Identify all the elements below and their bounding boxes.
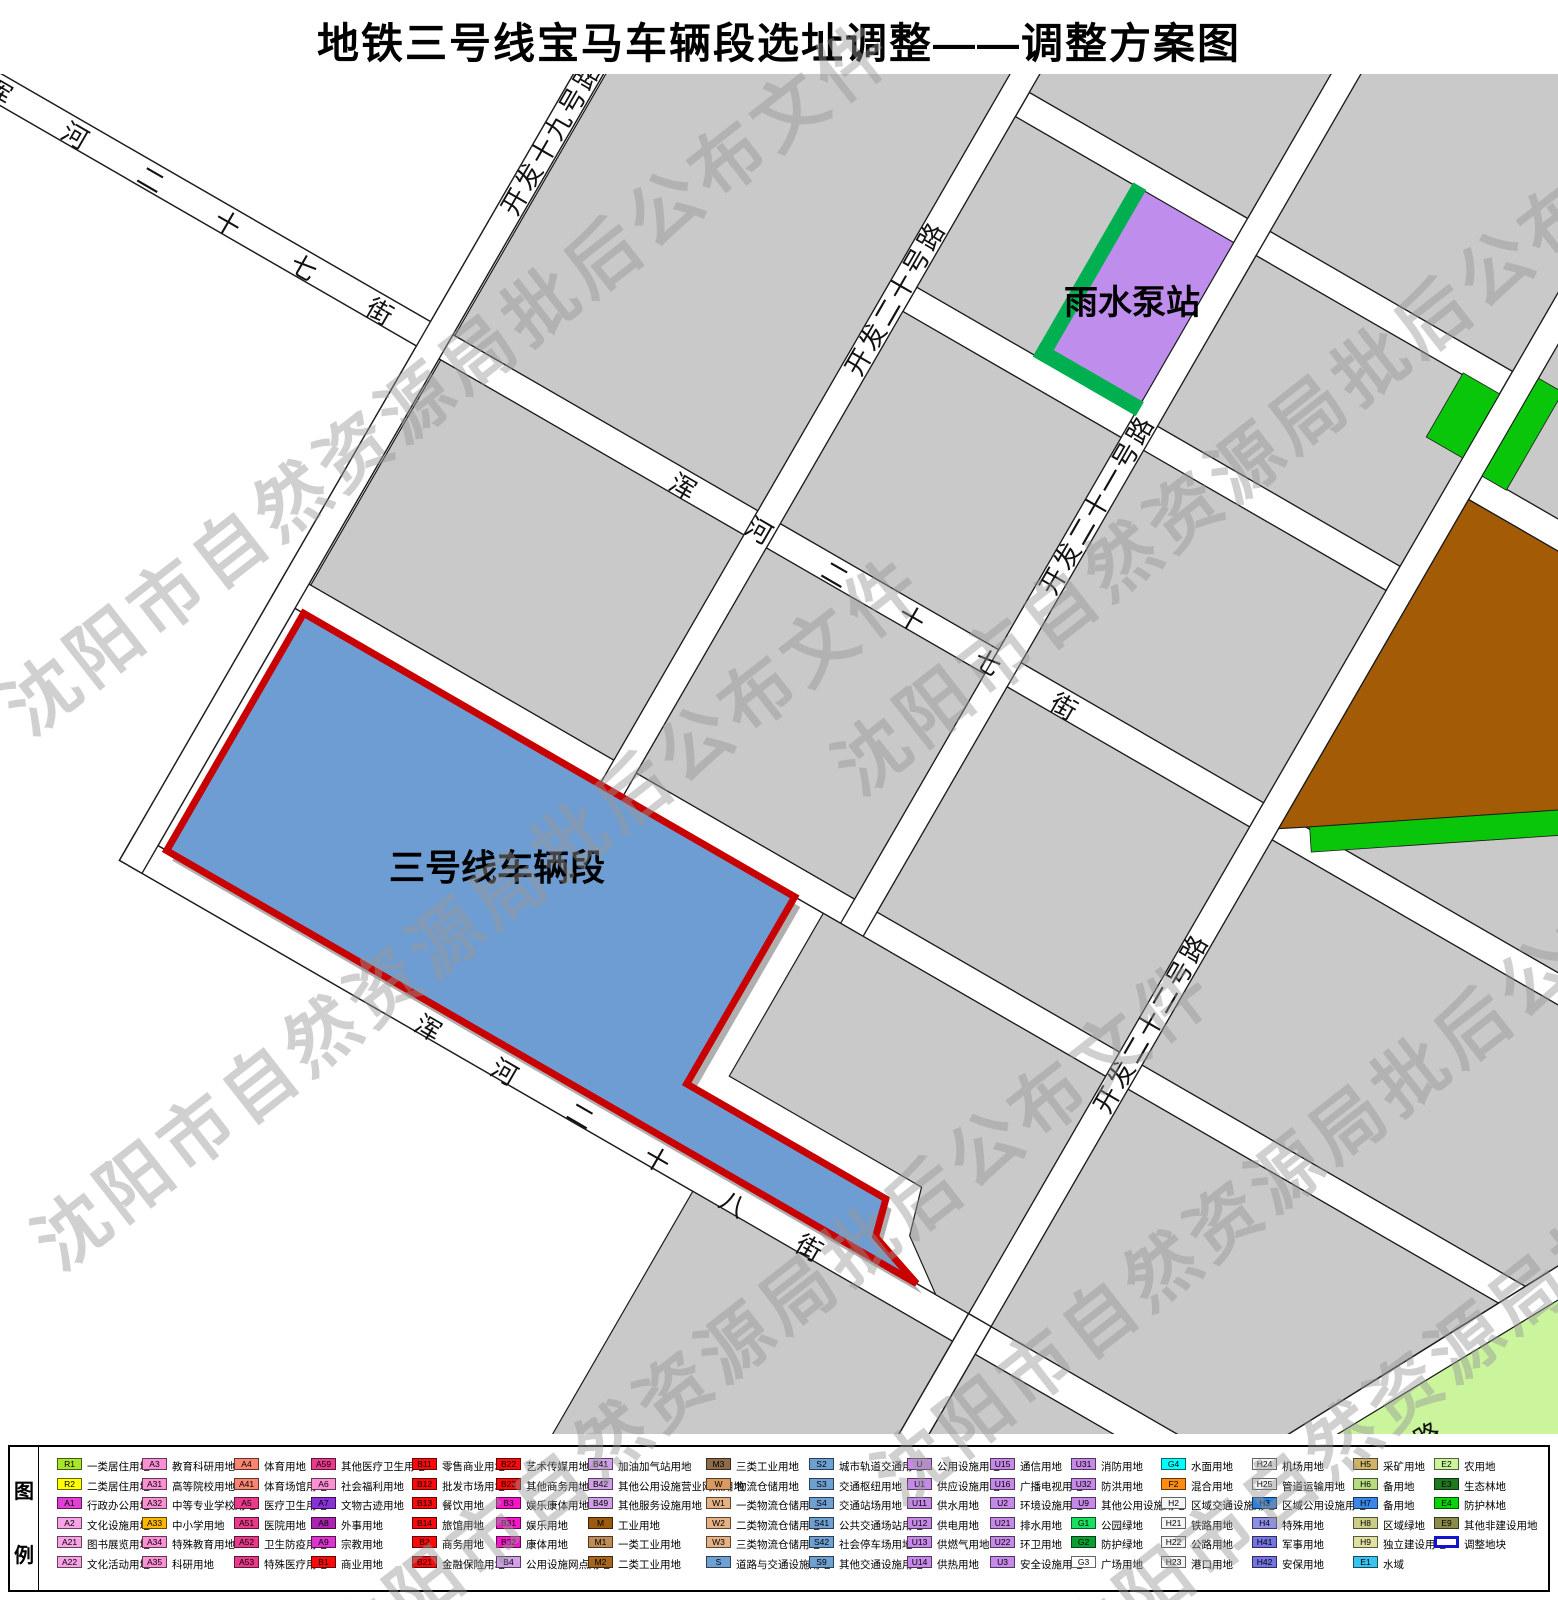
legend-swatch: S bbox=[706, 1556, 731, 1568]
legend-swatch: E3 bbox=[1434, 1478, 1459, 1490]
legend-label: 安保用地 bbox=[1282, 1557, 1324, 1572]
legend-label: 二类居住用地 bbox=[87, 1479, 150, 1494]
legend-swatch: B41 bbox=[588, 1458, 613, 1470]
legend-swatch: A6 bbox=[311, 1478, 336, 1490]
legend-swatch: A22 bbox=[57, 1556, 82, 1568]
legend-label: 通信用地 bbox=[1020, 1459, 1062, 1474]
legend-swatch: U bbox=[907, 1458, 932, 1470]
legend-swatch: B1 bbox=[311, 1556, 336, 1568]
legend-label: 文化设施用地 bbox=[87, 1518, 150, 1533]
legend-swatch: W3 bbox=[706, 1536, 731, 1548]
legend-label: 公园绿地 bbox=[1101, 1518, 1143, 1533]
legend-swatch: U12 bbox=[907, 1517, 932, 1529]
road-label-hunhe27-west: 浑河二十七街 bbox=[0, 72, 452, 362]
legend-swatch: H8 bbox=[1353, 1517, 1378, 1529]
legend-swatch: A9 bbox=[311, 1536, 336, 1548]
legend-swatch: H24 bbox=[1252, 1458, 1277, 1470]
legend-label: 行政办公用地 bbox=[87, 1498, 150, 1513]
legend-swatch: A5 bbox=[234, 1497, 259, 1509]
legend-swatch: A33 bbox=[142, 1517, 167, 1529]
legend-swatch: S3 bbox=[809, 1478, 834, 1490]
legend-label: 农用地 bbox=[1464, 1459, 1496, 1474]
legend-swatch: A41 bbox=[234, 1478, 259, 1490]
legend-label: 采矿用地 bbox=[1383, 1459, 1425, 1474]
legend-swatch: U3 bbox=[990, 1556, 1015, 1568]
legend-label: 三类工业用地 bbox=[736, 1459, 799, 1474]
legend-swatch: G4 bbox=[1161, 1458, 1186, 1470]
legend-swatch: U2 bbox=[990, 1497, 1015, 1509]
legend-label: 防护林地 bbox=[1464, 1498, 1506, 1513]
legend-label: 艺术传媒用地 bbox=[526, 1459, 589, 1474]
legend-label: 医院用地 bbox=[264, 1518, 306, 1533]
legend-label: 水面用地 bbox=[1191, 1459, 1233, 1474]
legend-label: 铁路用地 bbox=[1191, 1518, 1233, 1533]
legend-swatch: S4 bbox=[809, 1497, 834, 1509]
legend-label: 防护绿地 bbox=[1101, 1537, 1143, 1552]
legend-label: 供热用地 bbox=[937, 1557, 979, 1572]
legend-swatch: H6 bbox=[1353, 1478, 1378, 1490]
legend-label: 物流仓储用地 bbox=[736, 1479, 799, 1494]
legend-swatch: S42 bbox=[809, 1536, 834, 1548]
legend-label: 中小学用地 bbox=[172, 1518, 225, 1533]
legend-swatch: B13 bbox=[412, 1497, 437, 1509]
legend-swatch: A53 bbox=[234, 1556, 259, 1568]
legend-swatch: B11 bbox=[412, 1458, 437, 1470]
legend-swatch: W2 bbox=[706, 1517, 731, 1529]
legend-swatch: H3 bbox=[1252, 1497, 1277, 1509]
legend-label: 混合用地 bbox=[1191, 1479, 1233, 1494]
legend-swatch: A4 bbox=[234, 1458, 259, 1470]
legend-label: 一类工业用地 bbox=[618, 1537, 681, 1552]
legend-swatch: M2 bbox=[588, 1556, 613, 1568]
legend-swatch: H9 bbox=[1353, 1536, 1378, 1548]
page: 地铁三号线宝马车辆段选址调整——调整方案图 bbox=[0, 0, 1558, 1600]
legend-label: 图书展览用地 bbox=[87, 1537, 150, 1552]
legend-label: 其他商务用地 bbox=[526, 1479, 589, 1494]
legend-swatch: B3 bbox=[496, 1497, 521, 1509]
legend-swatch: B22 bbox=[496, 1458, 521, 1470]
legend-swatch: A3 bbox=[142, 1458, 167, 1470]
legend-label: 加油加气站用地 bbox=[618, 1459, 692, 1474]
legend-swatch: A2 bbox=[57, 1517, 82, 1529]
legend-label: 商务用地 bbox=[442, 1537, 484, 1552]
legend-label: 公路用地 bbox=[1191, 1537, 1233, 1552]
legend-label: 供水用地 bbox=[937, 1498, 979, 1513]
legend-swatch: E4 bbox=[1434, 1497, 1459, 1509]
legend-swatch: A8 bbox=[311, 1517, 336, 1529]
legend-label: 三类物流仓储用地 bbox=[736, 1537, 820, 1552]
legend-swatch: M3 bbox=[706, 1458, 731, 1470]
legend-swatch: H5 bbox=[1353, 1458, 1378, 1470]
legend-swatch: H4 bbox=[1252, 1517, 1277, 1529]
legend-label: 宗教用地 bbox=[341, 1537, 383, 1552]
legend-swatch: A59 bbox=[311, 1458, 336, 1470]
legend-label: 备用地 bbox=[1383, 1498, 1415, 1513]
legend-swatch: A35 bbox=[142, 1556, 167, 1568]
legend-swatch: E2 bbox=[1434, 1458, 1459, 1470]
legend-swatch: M1 bbox=[588, 1536, 613, 1548]
legend-swatch: A32 bbox=[142, 1497, 167, 1509]
legend: 图 例 R1一类居住用地R2二类居住用地A1行政办公用地A2文化设施用地A21图… bbox=[8, 1445, 1550, 1592]
legend-swatch: U13 bbox=[907, 1536, 932, 1548]
legend-header-char-bottom: 例 bbox=[14, 1539, 34, 1568]
legend-label: 机场用地 bbox=[1282, 1459, 1324, 1474]
legend-swatch: S2 bbox=[809, 1458, 834, 1470]
legend-swatch: U9 bbox=[1071, 1497, 1096, 1509]
legend-label: 环卫用地 bbox=[1020, 1537, 1062, 1552]
legend-swatch: U22 bbox=[990, 1536, 1015, 1548]
legend-label: 高等院校用地 bbox=[172, 1479, 235, 1494]
legend-swatch: A31 bbox=[142, 1478, 167, 1490]
legend-swatch: H25 bbox=[1252, 1478, 1277, 1490]
legend-swatch: H7 bbox=[1353, 1497, 1378, 1509]
legend-swatch: U15 bbox=[990, 1458, 1015, 1470]
legend-swatch: W bbox=[706, 1478, 731, 1490]
legend-label: 社会停车场用地 bbox=[839, 1537, 913, 1552]
legend-swatch: B4 bbox=[496, 1556, 521, 1568]
legend-swatch: E1 bbox=[1353, 1556, 1378, 1568]
legend-swatch: A52 bbox=[234, 1536, 259, 1548]
legend-label: 科研用地 bbox=[172, 1557, 214, 1572]
legend-label: 娱乐康体用地 bbox=[526, 1498, 589, 1513]
legend-label: 社会福利用地 bbox=[341, 1479, 404, 1494]
legend-label: 一类居住用地 bbox=[87, 1459, 150, 1474]
page-title: 地铁三号线宝马车辆段选址调整——调整方案图 bbox=[0, 10, 1558, 71]
legend-label: 教育科研用地 bbox=[172, 1459, 235, 1474]
legend-swatch: U16 bbox=[990, 1478, 1015, 1490]
legend-swatch: F2 bbox=[1161, 1478, 1186, 1490]
legend-swatch: B49 bbox=[588, 1497, 613, 1509]
legend-swatch: U1 bbox=[907, 1478, 932, 1490]
legend-swatch: B23 bbox=[496, 1478, 521, 1490]
legend-label: 其他服务设施用地 bbox=[618, 1498, 702, 1513]
legend-label: 康体用地 bbox=[526, 1537, 568, 1552]
legend-swatch: H2 bbox=[1161, 1497, 1186, 1509]
legend-label: 供燃气用地 bbox=[937, 1537, 990, 1552]
legend-swatch: U14 bbox=[907, 1556, 932, 1568]
legend-label: 港口用地 bbox=[1191, 1557, 1233, 1572]
legend-label: 广场用地 bbox=[1101, 1557, 1143, 1572]
legend-label: 防洪用地 bbox=[1101, 1479, 1143, 1494]
legend-swatch: B21 bbox=[412, 1556, 437, 1568]
legend-swatch: A34 bbox=[142, 1536, 167, 1548]
legend-label: 二类物流仓储用地 bbox=[736, 1518, 820, 1533]
legend-label: 商业用地 bbox=[341, 1557, 383, 1572]
pump-station-label: 雨水泵站 bbox=[1064, 284, 1200, 322]
legend-swatch: R1 bbox=[57, 1458, 82, 1470]
depot-label: 三号线车辆段 bbox=[389, 847, 605, 888]
legend-label: 外事用地 bbox=[341, 1518, 383, 1533]
legend-swatch: B32 bbox=[496, 1536, 521, 1548]
legend-label: 工业用地 bbox=[618, 1518, 660, 1533]
legend-swatch: S9 bbox=[809, 1556, 834, 1568]
legend-swatch: W1 bbox=[706, 1497, 731, 1509]
legend-label: 一类物流仓储用地 bbox=[736, 1498, 820, 1513]
legend-label: 文物古迹用地 bbox=[341, 1498, 404, 1513]
legend-swatch: B14 bbox=[412, 1517, 437, 1529]
legend-label: 特殊用地 bbox=[1282, 1518, 1324, 1533]
legend-swatch: E9 bbox=[1434, 1517, 1459, 1529]
legend-label: 管道运输用地 bbox=[1282, 1479, 1345, 1494]
legend-swatch: M bbox=[588, 1517, 613, 1529]
legend-label: 其他非建设用地 bbox=[1464, 1518, 1538, 1533]
legend-swatch: S41 bbox=[809, 1517, 834, 1529]
legend-label: 餐饮用地 bbox=[442, 1498, 484, 1513]
legend-label: 备用地 bbox=[1383, 1479, 1415, 1494]
legend-swatch: G1 bbox=[1071, 1517, 1096, 1529]
legend-swatch: H21 bbox=[1161, 1517, 1186, 1529]
legend-swatch: U31 bbox=[1071, 1458, 1096, 1470]
legend-swatch: B2 bbox=[412, 1536, 437, 1548]
legend-swatch bbox=[1434, 1536, 1459, 1548]
legend-swatch: R2 bbox=[57, 1478, 82, 1490]
legend-label: 特殊教育用地 bbox=[172, 1537, 235, 1552]
legend-label: 排水用地 bbox=[1020, 1518, 1062, 1533]
legend-label: 交通枢纽用地 bbox=[839, 1479, 902, 1494]
legend-label: 消防用地 bbox=[1101, 1459, 1143, 1474]
legend-swatch: A7 bbox=[311, 1497, 336, 1509]
legend-swatch: U32 bbox=[1071, 1478, 1096, 1490]
legend-label: 旅馆用地 bbox=[442, 1518, 484, 1533]
legend-swatch: U11 bbox=[907, 1497, 932, 1509]
legend-swatch: H41 bbox=[1252, 1536, 1277, 1548]
legend-swatch: H22 bbox=[1161, 1536, 1186, 1548]
legend-swatch: G2 bbox=[1071, 1536, 1096, 1548]
legend-header-char-top: 图 bbox=[14, 1475, 34, 1504]
legend-label: 交通站场用地 bbox=[839, 1498, 902, 1513]
legend-label: 二类工业用地 bbox=[618, 1557, 681, 1572]
legend-swatch: A1 bbox=[57, 1497, 82, 1509]
legend-swatch: A51 bbox=[234, 1517, 259, 1529]
legend-label: 供电用地 bbox=[937, 1518, 979, 1533]
legend-swatch: B31 bbox=[496, 1517, 521, 1529]
legend-label: 体育用地 bbox=[264, 1459, 306, 1474]
legend-label: 文化活动用地 bbox=[87, 1557, 150, 1572]
legend-label: 区域绿地 bbox=[1383, 1518, 1425, 1533]
legend-swatch: A21 bbox=[57, 1536, 82, 1548]
legend-label: 生态林地 bbox=[1464, 1479, 1506, 1494]
legend-swatch: B42 bbox=[588, 1478, 613, 1490]
map-canvas: 浑河二十七街 浑河二十七街 浑河二十八街 开发十九号路 开发二十号路 开发二十一… bbox=[0, 0, 1558, 1600]
legend-header: 图 例 bbox=[10, 1447, 39, 1590]
legend-swatch: H42 bbox=[1252, 1556, 1277, 1568]
legend-swatch: B12 bbox=[412, 1478, 437, 1490]
legend-label: 娱乐用地 bbox=[526, 1518, 568, 1533]
legend-swatch: U21 bbox=[990, 1517, 1015, 1529]
legend-swatch: G3 bbox=[1071, 1556, 1096, 1568]
legend-swatch: H23 bbox=[1161, 1556, 1186, 1568]
legend-label: 军事用地 bbox=[1282, 1537, 1324, 1552]
legend-label: 调整地块 bbox=[1464, 1537, 1506, 1552]
legend-label: 水域 bbox=[1383, 1557, 1404, 1572]
